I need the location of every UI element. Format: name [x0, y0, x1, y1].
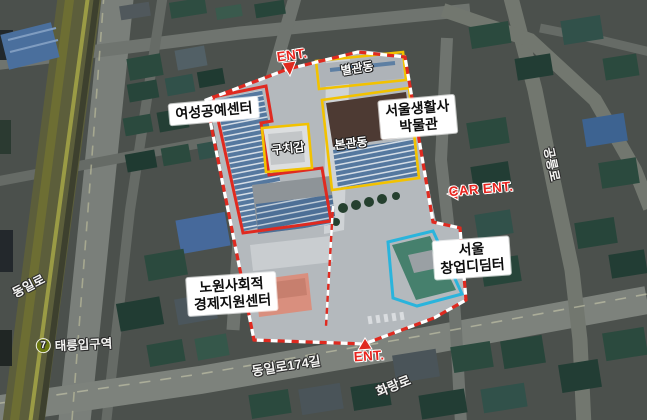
map-canvas — [0, 0, 647, 420]
aerial-map: 여성공예센터 서울생활사 박물관 노원사회적 경제지원센터 서울 창업디딤터 별… — [0, 0, 647, 420]
